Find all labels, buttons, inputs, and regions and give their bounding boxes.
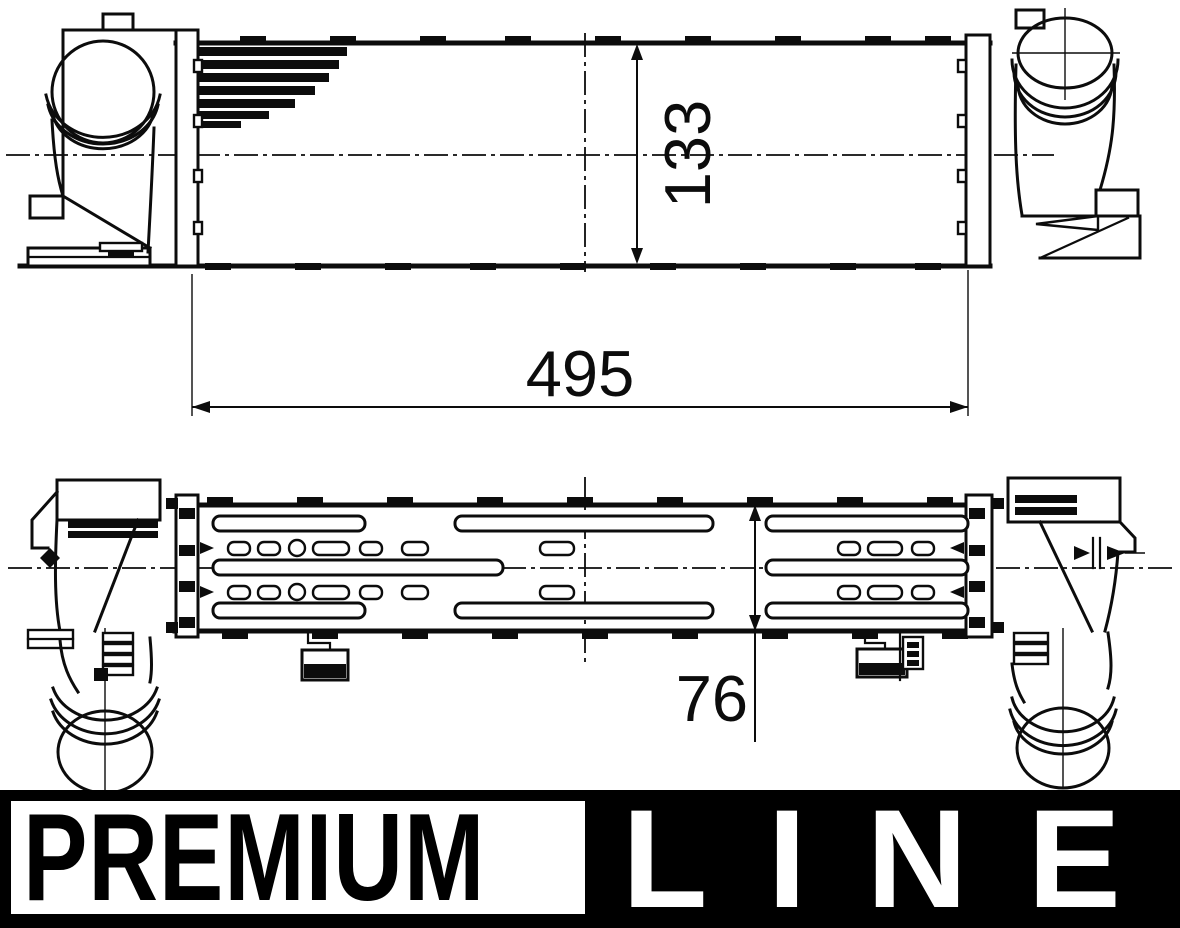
right-bracket-pipe bbox=[1008, 478, 1145, 788]
dim-height-label: 133 bbox=[651, 100, 724, 208]
line-label: LINE bbox=[622, 790, 1180, 928]
core2-clips-top bbox=[207, 497, 953, 504]
intercooler-technical-drawing: 133 495 bbox=[0, 0, 1180, 928]
core-clips-bottom bbox=[205, 263, 941, 270]
front-view: 133 495 bbox=[6, 8, 1140, 416]
right-tank-plate bbox=[966, 35, 990, 266]
dimension-76: 76 bbox=[676, 505, 761, 742]
dim-depth-label: 76 bbox=[676, 662, 748, 735]
left-bracket-pipe bbox=[28, 480, 160, 790]
line-box: LINE bbox=[600, 790, 1180, 928]
dimension-133: 133 bbox=[631, 44, 724, 264]
drawing-views: 133 495 bbox=[0, 0, 1180, 790]
core-slot-pattern bbox=[200, 516, 968, 618]
core2-clips-bottom bbox=[222, 632, 968, 639]
dimension-495: 495 bbox=[192, 270, 968, 416]
premium-box: PREMIUM bbox=[4, 794, 592, 921]
premium-label: PREMIUM bbox=[23, 796, 485, 920]
left-tank-and-pipe bbox=[28, 14, 176, 266]
dim-length-label: 495 bbox=[526, 337, 634, 410]
right-tank-and-pipe bbox=[1012, 8, 1140, 258]
core-fin-hatch bbox=[197, 47, 347, 128]
premium-line-banner: PREMIUM LINE bbox=[0, 790, 1180, 928]
top-view: 76 bbox=[8, 477, 1172, 790]
flow-arrow-marker bbox=[1093, 538, 1100, 568]
